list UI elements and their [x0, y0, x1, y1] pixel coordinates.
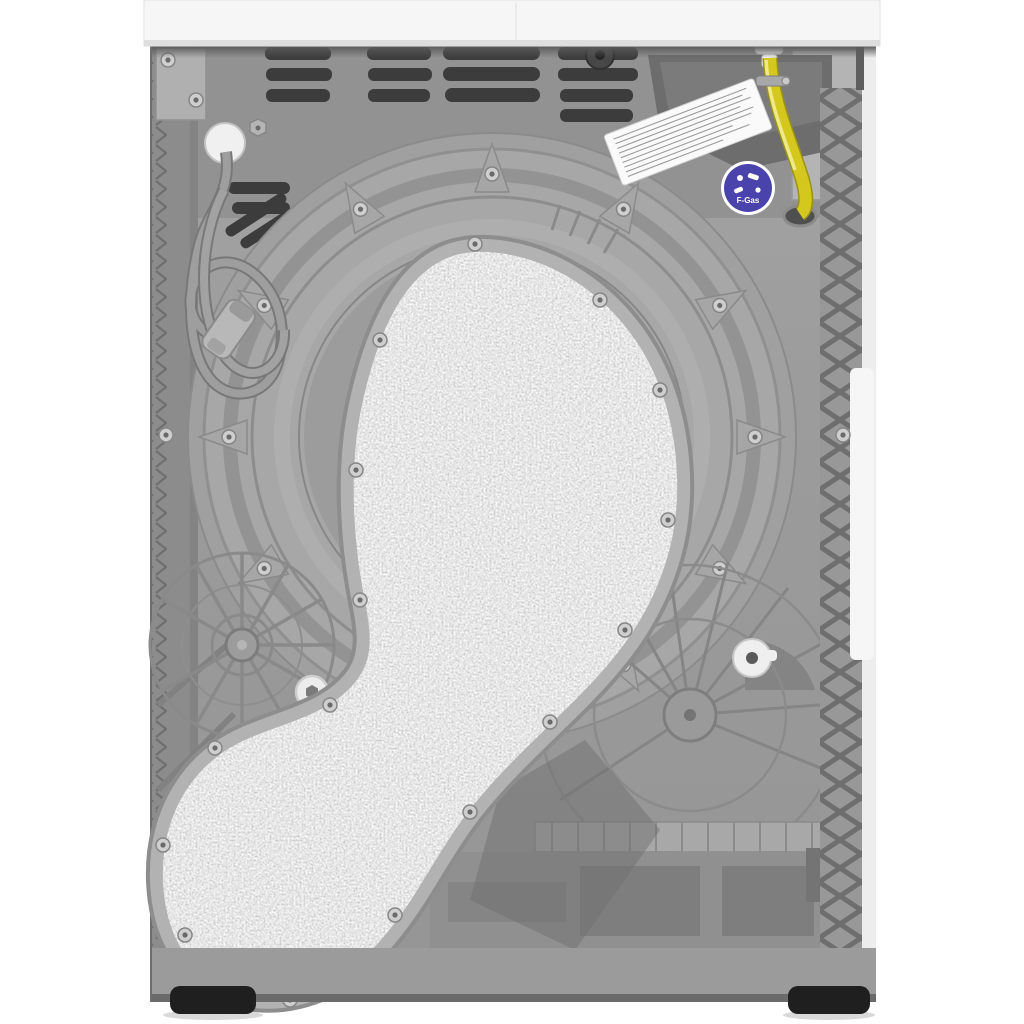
machine-body: F-Gas [144, 0, 880, 1020]
worktop [144, 0, 880, 58]
fgas-badge-text: F-Gas [737, 196, 760, 205]
side-panel-highlight [850, 368, 874, 660]
photo-canvas: F-Gas [0, 0, 1024, 1024]
worktop-shadow [152, 46, 876, 58]
foot-left [170, 986, 256, 1014]
fgas-badge: F-Gas [721, 161, 775, 215]
foot-right [788, 986, 870, 1014]
bottom-rail [152, 948, 876, 998]
bottom-edge [152, 994, 876, 1002]
dryer-rear-photo: F-Gas [0, 0, 1024, 1024]
